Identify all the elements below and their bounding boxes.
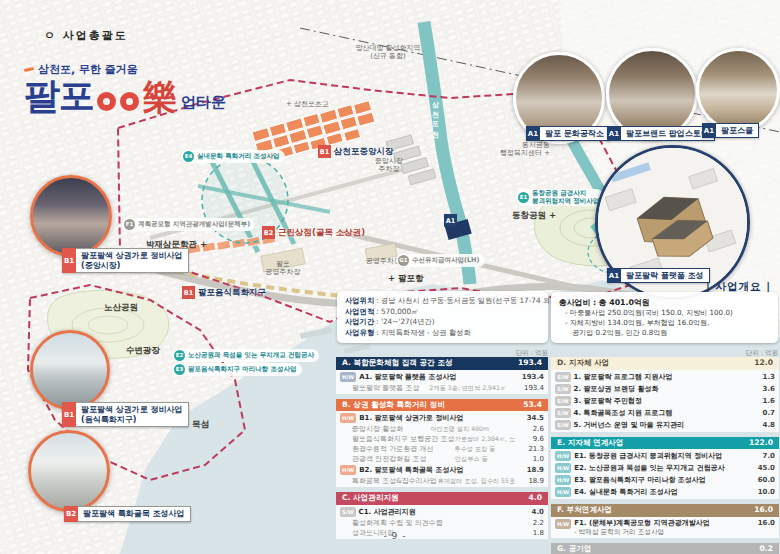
table-row: 특화골목 조성&집수리사업 휴게쉼터 조성, 집수리 55호 18.9 bbox=[336, 476, 548, 486]
row-type-badge: H/W bbox=[340, 465, 356, 475]
badge-e1: E1 bbox=[518, 192, 529, 203]
table-row: H/W E2. 노산공원과 목섬을 잇는 무지개교 건립공사 45.0 bbox=[551, 462, 779, 474]
photo-circle-alley bbox=[28, 430, 110, 512]
table-row: H/W E1. 동창공원 급경사지 붕괴위험지역 정비사업 7.0 bbox=[551, 450, 779, 462]
badge-g1: G1 bbox=[398, 255, 409, 266]
badge-b2: B2 bbox=[64, 506, 78, 522]
row-type-badge: H/W bbox=[555, 519, 571, 529]
table-row: 활성화계획 수립 및 의견수렴 2.2 bbox=[336, 518, 548, 528]
section-header-D: D. 지자체 사업 12.0 bbox=[551, 357, 779, 370]
table-row: 팔포팔락 플랫폼 조성 2개동 3층, 연면적 2,941㎡ 193.4 bbox=[336, 383, 548, 393]
row-type-badge: S/W bbox=[555, 372, 571, 382]
row-type-badge: S/W bbox=[555, 420, 571, 430]
budget-line: - 마중물사업 250.0억원(국비 150.0, 지방비 100.0) bbox=[559, 308, 770, 318]
callout-street-food: B1 팔포팔색 상권가로 정비사업(음식특화지구) bbox=[62, 402, 189, 427]
photo-circle-market-street bbox=[30, 175, 112, 257]
overview-row: 사업위치: 경남 사천시 선구동·동서금동 일원(선구동 17-74 외) bbox=[345, 296, 540, 307]
badge-a1: A1 bbox=[607, 268, 621, 283]
poi-school: + 삼천포초교 bbox=[286, 100, 329, 108]
badge-e2: E2 bbox=[174, 350, 185, 361]
budget-line: - 자체지방비 134.0억원, 부처협업 16.0억원, bbox=[559, 318, 770, 328]
section-header-G: G. 공기업 0.2 bbox=[551, 543, 779, 554]
badge-a1: A1 bbox=[702, 123, 716, 138]
table-row: H/W B2. 팔포팔색 특화골목 조성사업 18.9 bbox=[336, 464, 548, 476]
map-label-e4: E4 실내문화 특화거리 조성사업 bbox=[181, 150, 285, 163]
table-section-G: G. 공기업 0.2 H/W G1. 수선유지급여사업(LH) 0.2 bbox=[551, 543, 779, 554]
map-label-a1-site: A1 bbox=[444, 214, 457, 227]
badge-a1: A1 bbox=[607, 126, 621, 141]
row-type-badge: H/W bbox=[555, 451, 571, 461]
map-label-e1: E1 동창공원 급경사지붕괴위험지역 정비사업 bbox=[516, 189, 604, 206]
table-section-D: D. 지자체 사업 12.0 S/W 1. 팔포팔락 프로그램 지원사업 1.3… bbox=[551, 357, 779, 432]
logo-circle-icon bbox=[120, 92, 139, 111]
section-header-E: E. 지자체 연계사업 122.0 bbox=[551, 437, 779, 450]
photo-circle-food-street bbox=[30, 330, 110, 410]
logo-circle-icon bbox=[97, 92, 116, 111]
table-row: 중앙시장 활성화 야간조명 설치 480m 2.6 bbox=[336, 424, 548, 434]
section-header-A: A. 복합문화체험 집객 공간 조성 193.4 bbox=[336, 357, 548, 370]
table-row: S/W 2. 팔포상권 브랜딩 활성화 3.6 bbox=[551, 383, 779, 395]
budget-title: 총사업비 : 총 401.0억원 bbox=[559, 297, 770, 308]
table-section-A: A. 복합문화체험 집객 공간 조성 193.4 H/W A1. 팔포팔락 플랫… bbox=[336, 357, 548, 394]
row-type-badge: H/W bbox=[555, 475, 571, 485]
budget-line: 공기업 0.2억원, 민간 0.8억원 bbox=[559, 328, 770, 338]
callout-school: A1 팔포스쿨 bbox=[702, 123, 759, 138]
project-overview-box: 사업위치: 경남 사천시 선구동·동서금동 일원(선구동 17-74 외) 사업… bbox=[337, 291, 548, 343]
badge-a1: A1 bbox=[526, 126, 540, 141]
brand-title-rak: 樂 bbox=[143, 80, 177, 114]
row-type-badge: H/W bbox=[555, 487, 571, 497]
badge-b1: B1 bbox=[62, 248, 76, 273]
poi-river-name: 삼천포천 bbox=[430, 96, 440, 136]
poi-waterfront-plaza: 수변광장 bbox=[126, 346, 160, 355]
callout-culture-workshop: A1 팔포 문화공작소 bbox=[526, 126, 610, 141]
row-type-badge: S/W bbox=[340, 507, 356, 517]
poi-nosan-park: 노산공원 bbox=[104, 303, 138, 312]
table-row: 성과모니터링 1.8 bbox=[336, 528, 548, 538]
doc-title: ㅇ 사업총괄도 bbox=[44, 28, 128, 43]
map-label-e2: E2 노산공원과 목섬을 잇는 무지개교 건립공사 bbox=[172, 349, 319, 362]
badge-e3: E3 bbox=[174, 364, 185, 375]
table-row: 팔포음식특화지구 보행공간 조성 가로정비 2,384㎡, 노후간판정비 30개… bbox=[336, 434, 548, 444]
table-row: 관광객 안전강화길 조성 안심부스 등 1.0 bbox=[336, 454, 548, 464]
poi-market-parking: 중앙시장 주차장 bbox=[372, 157, 406, 173]
row-type-badge: S/W bbox=[555, 408, 571, 418]
callout-platform: A1 팔포팔락 플랫폼 조성 bbox=[607, 268, 710, 283]
row-type-badge: S/W bbox=[555, 384, 571, 394]
budget-box: 총사업비 : 총 401.0억원 - 마중물사업 250.0억원(국비 150.… bbox=[551, 292, 778, 343]
row-type-badge: H/W bbox=[555, 463, 571, 473]
budget-table-right: D. 지자체 사업 12.0 S/W 1. 팔포팔락 프로그램 지원사업 1.3… bbox=[551, 357, 779, 554]
section-header-C: C. 사업관리지원 4.0 bbox=[336, 492, 548, 505]
table-section-E: E. 지자체 연계사업 122.0 H/W E1. 동창공원 급경사지 붕괴위험… bbox=[551, 437, 779, 500]
badge-b2-shops: B2 bbox=[262, 226, 275, 239]
badge-a1-site: A1 bbox=[444, 214, 457, 227]
budget-table-left: A. 복합문화체험 집객 공간 조성 193.4 H/W A1. 팔포팔락 플랫… bbox=[336, 357, 548, 544]
table-row: H/W F1. (문체부)계획공모형 지역관광개발사업- 박재삼 문학의 거리 … bbox=[551, 518, 779, 537]
map-label-e3: E3 팔포음식특화지구 마리나항 조성사업 bbox=[172, 363, 302, 376]
table-section-C: C. 사업관리지원 4.0 S/W C1. 사업관리지원 4.0 활성화계획 수… bbox=[336, 492, 548, 539]
brand-title-part1: 팔포 bbox=[24, 78, 94, 114]
table-row: S/W 5. 거버넌스 운영 및 마을 유지관리 4.8 bbox=[551, 419, 779, 431]
callout-alley: B2 팔포팔색 특화골목 조성사업 bbox=[64, 506, 191, 522]
table-row: S/W C1. 사업관리지원 4.0 bbox=[336, 506, 548, 518]
table-row: H/W A1. 팔포팔락 플랫폼 조성사업 193.4 bbox=[336, 371, 548, 383]
row-type-badge: H/W bbox=[340, 372, 356, 382]
poi-admin-center: 동서금동 행정복지센터 + bbox=[494, 141, 550, 157]
table-row: H/W E3. 팔포음식특화지구 마리나항 조성사업 60.0 bbox=[551, 474, 779, 486]
brand-title: 팔포 樂 업타운 bbox=[24, 78, 226, 114]
overview-row: 사업유형: 지역특화재생 - 상권 활성화 bbox=[345, 328, 540, 339]
overview-row: 사업기간: '24~'27(4년간) bbox=[345, 317, 540, 328]
table-row: S/W 1. 팔포팔락 프로그램 지원사업 1.3 bbox=[551, 371, 779, 383]
page-canvas: ㅇ 사업총괄도 삼천포, 무한 즐거움 팔포 樂 업타운 망산대방 활성화지역 … bbox=[0, 0, 780, 554]
badge-e4: E4 bbox=[183, 151, 194, 162]
callout-popup-store: A1 팔포브랜드 팝업스토어 bbox=[607, 126, 715, 141]
tagline-accent-icon bbox=[24, 67, 34, 72]
brand-logo: 삼천포, 무한 즐거움 팔포 樂 업타운 bbox=[24, 62, 226, 114]
map-label-g1: G1 수선유지급여사업(LH) bbox=[396, 254, 485, 267]
poi-activation-zone: 망산대방 활성화지역 (신규 통합) bbox=[338, 44, 438, 60]
table-row: S/W 3. 팔포팔락 주민협정 1.6 bbox=[551, 395, 779, 407]
callout-street-market: B1 팔포팔색 상권가로 정비사업(중앙시장) bbox=[62, 248, 189, 273]
table-row: 환경수용적 가로환경 개선 투수성 포장 등 21.3 bbox=[336, 444, 548, 454]
section-header-F: F. 부처연계사업 16.0 bbox=[551, 504, 779, 517]
table-section-B: B. 상권 활성화 특화거리 정비 53.4 H/W B1. 팔포팔색 상권가로… bbox=[336, 399, 548, 488]
poi-palpo-parking: 팔포 공영주차장 bbox=[262, 260, 304, 276]
row-type-badge: S/W bbox=[555, 396, 571, 406]
table-row: H/W B1. 팔포팔색 상권가로 정비사업 34.5 bbox=[336, 412, 548, 424]
badge-b1-market: B1 bbox=[318, 145, 331, 158]
badge-b1: B1 bbox=[62, 402, 76, 427]
map-label-b2-shops: B2 근린상점(골목 소상권) bbox=[262, 226, 365, 239]
badge-b1-food: B1 bbox=[182, 286, 195, 299]
overview-row: 사업면적: 570,000㎡ bbox=[345, 307, 540, 318]
photo-circle-school bbox=[696, 48, 780, 132]
row-type-badge: H/W bbox=[340, 413, 356, 423]
table-row: H/W E4. 실내문화 특화거리 조성사업 10.0 bbox=[551, 486, 779, 498]
page-number: - 9 - bbox=[375, 531, 415, 541]
poi-palpo-port: + 팔포항 bbox=[388, 274, 424, 283]
table-row: S/W 4. 특화골목조성 지원 프로그램 0.7 bbox=[551, 407, 779, 419]
section-header-B: B. 상권 활성화 특화거리 정비 53.4 bbox=[336, 399, 548, 412]
brand-title-suffix: 업타운 bbox=[181, 93, 226, 112]
table-section-F: F. 부처연계사업 16.0 H/W F1. (문체부)계획공모형 지역관광개발… bbox=[551, 504, 779, 538]
poi-dongchang-park: 동창공원 + bbox=[512, 211, 556, 220]
map-label-b1-food: B1 팔포음식특화지구 bbox=[182, 286, 266, 299]
map-label-f1: F1 계획공모형 지역관광개발사업(문체부) bbox=[122, 218, 255, 231]
badge-f1: F1 bbox=[124, 219, 135, 230]
